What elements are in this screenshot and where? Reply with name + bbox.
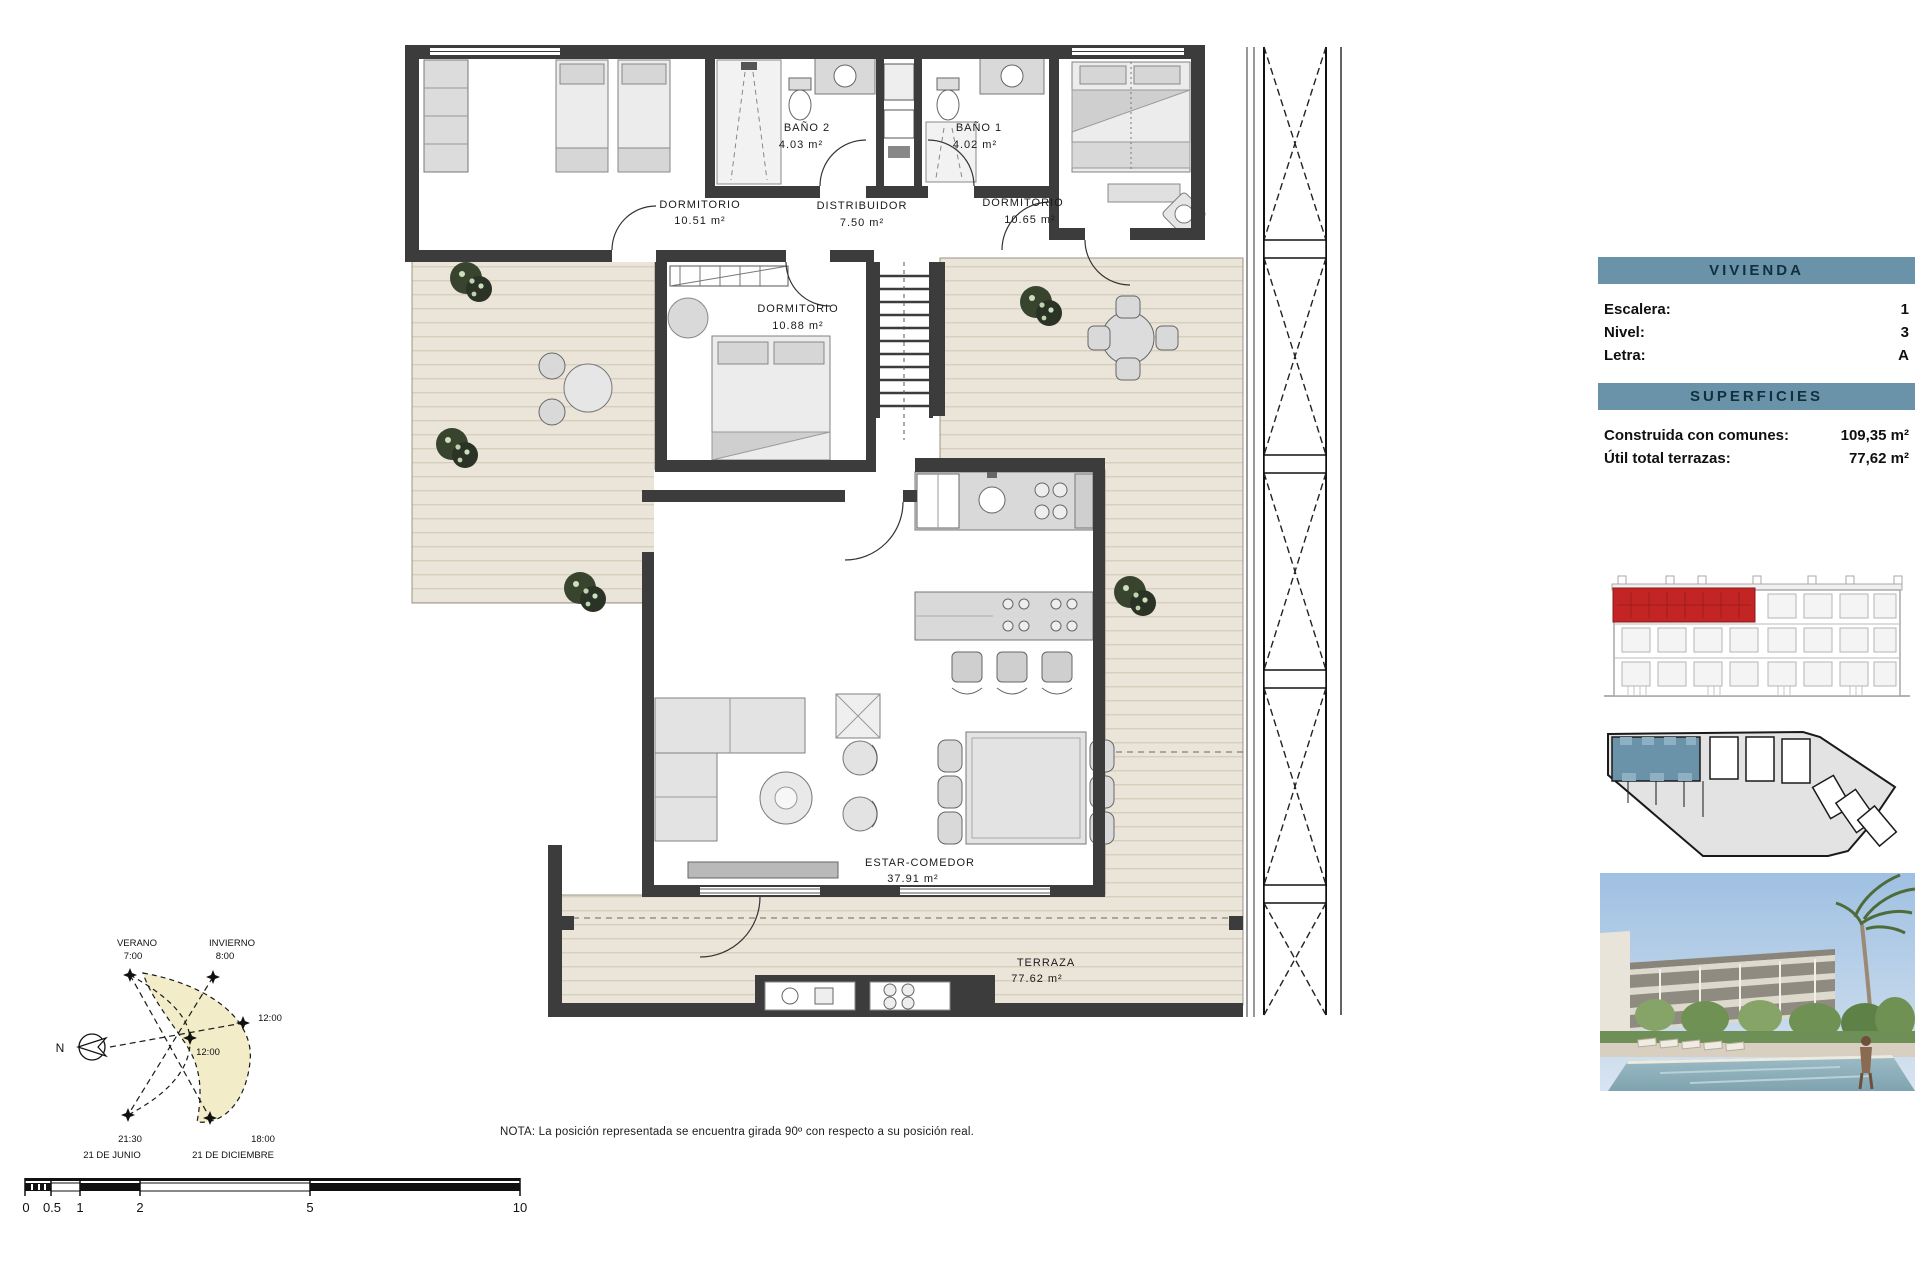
structure-strip [1264,47,1341,1015]
room-area-dormitorio3: 10.88 m² [772,320,823,332]
info-panel: VIVIENDA Escalera: 1 Nivel: 3 Letra: A S… [1598,257,1915,470]
sun-path-diagram: VERANO 7:00 INVIERNO 8:00 12:00 12:00 21… [30,925,320,1175]
escalera-row: Escalera: 1 [1604,298,1909,321]
outdoor-kitchen [755,975,995,1017]
room-label-estar: ESTAR-COMEDOR [865,857,975,869]
letra-value: A [1898,344,1909,367]
noon-inner: 12:00 [196,1047,220,1058]
scale-bar: 0 0.5 1 2 5 10 [15,1172,555,1224]
scale-1: 1 [76,1200,83,1215]
junio-time: 21:30 [118,1134,142,1145]
floor-plan: DORMITORIO 10.51 m² BAÑO 2 4.03 m² DISTR… [395,40,1345,1025]
nivel-label: Nivel: [1604,321,1645,344]
room-label-dormitorio1: DORMITORIO [659,199,740,211]
vivienda-rows: Escalera: 1 Nivel: 3 Letra: A [1604,298,1909,367]
escalera-label: Escalera: [1604,298,1671,321]
room-area-estar: 37.91 m² [887,873,938,885]
elevation-highlight [1613,588,1755,622]
util-row: Útil total terrazas: 77,62 m² [1604,447,1909,470]
verano-label: VERANO [117,938,157,949]
room-area-terraza: 77.62 m² [1011,973,1062,985]
room-label-terraza: TERRAZA [1017,957,1075,969]
letra-row: Letra: A [1604,344,1909,367]
room-label-dormitorio2: DORMITORIO [982,197,1063,209]
util-value: 77,62 m² [1849,447,1909,470]
scale-05: 0.5 [43,1200,61,1215]
scale-labels: 0 0.5 1 2 5 10 [22,1200,527,1215]
scale-segments [25,1183,520,1191]
room-label-bano1: BAÑO 1 [956,121,1002,134]
compass [78,1034,106,1060]
nivel-value: 3 [1901,321,1909,344]
diciembre-date: 21 DE DICIEMBRE [192,1150,274,1161]
diciembre-time: 18:00 [251,1134,275,1145]
scale-10: 10 [513,1200,527,1215]
escalera-value: 1 [1901,298,1909,321]
invierno-time: 8:00 [216,951,235,962]
north-label: N [56,1041,65,1055]
exterior-render-photo [1600,873,1915,1091]
sheet: DORMITORIO 10.51 m² BAÑO 2 4.03 m² DISTR… [0,0,1920,1280]
room-label-bano2: BAÑO 2 [784,121,830,134]
room-area-bano2: 4.03 m² [779,139,823,151]
room-label-distribuidor: DISTRIBUIDOR [817,200,908,212]
letra-label: Letra: [1604,344,1646,367]
site-plan [1598,727,1916,867]
room-area-dormitorio1: 10.51 m² [674,215,725,227]
scale-2: 2 [136,1200,143,1215]
construida-label: Construida con comunes: [1604,424,1789,447]
room-area-distribuidor: 7.50 m² [840,217,884,229]
room-area-bano1: 4.02 m² [953,139,997,151]
verano-time: 7:00 [124,951,143,962]
construida-row: Construida con comunes: 109,35 m² [1604,424,1909,447]
room-area-dormitorio2: 10.65 m² [1004,214,1055,226]
junio-date: 21 DE JUNIO [83,1150,141,1161]
site-highlight [1612,737,1700,781]
construida-value: 109,35 m² [1841,424,1909,447]
invierno-label: INVIERNO [209,938,255,949]
orientation-note: NOTA: La posición representada se encuen… [500,1126,974,1138]
terrace-edge [1247,47,1254,1017]
vivienda-header: VIVIENDA [1598,257,1915,284]
scale-5: 5 [306,1200,313,1215]
room-label-dormitorio3: DORMITORIO [757,303,838,315]
superficies-header: SUPERFICIES [1598,383,1915,410]
superficies-rows: Construida con comunes: 109,35 m² Útil t… [1604,424,1909,470]
noon-outer: 12:00 [258,1013,282,1024]
util-label: Útil total terrazas: [1604,447,1731,470]
building-elevation [1598,568,1916,708]
scale-0: 0 [22,1200,29,1215]
nivel-row: Nivel: 3 [1604,321,1909,344]
